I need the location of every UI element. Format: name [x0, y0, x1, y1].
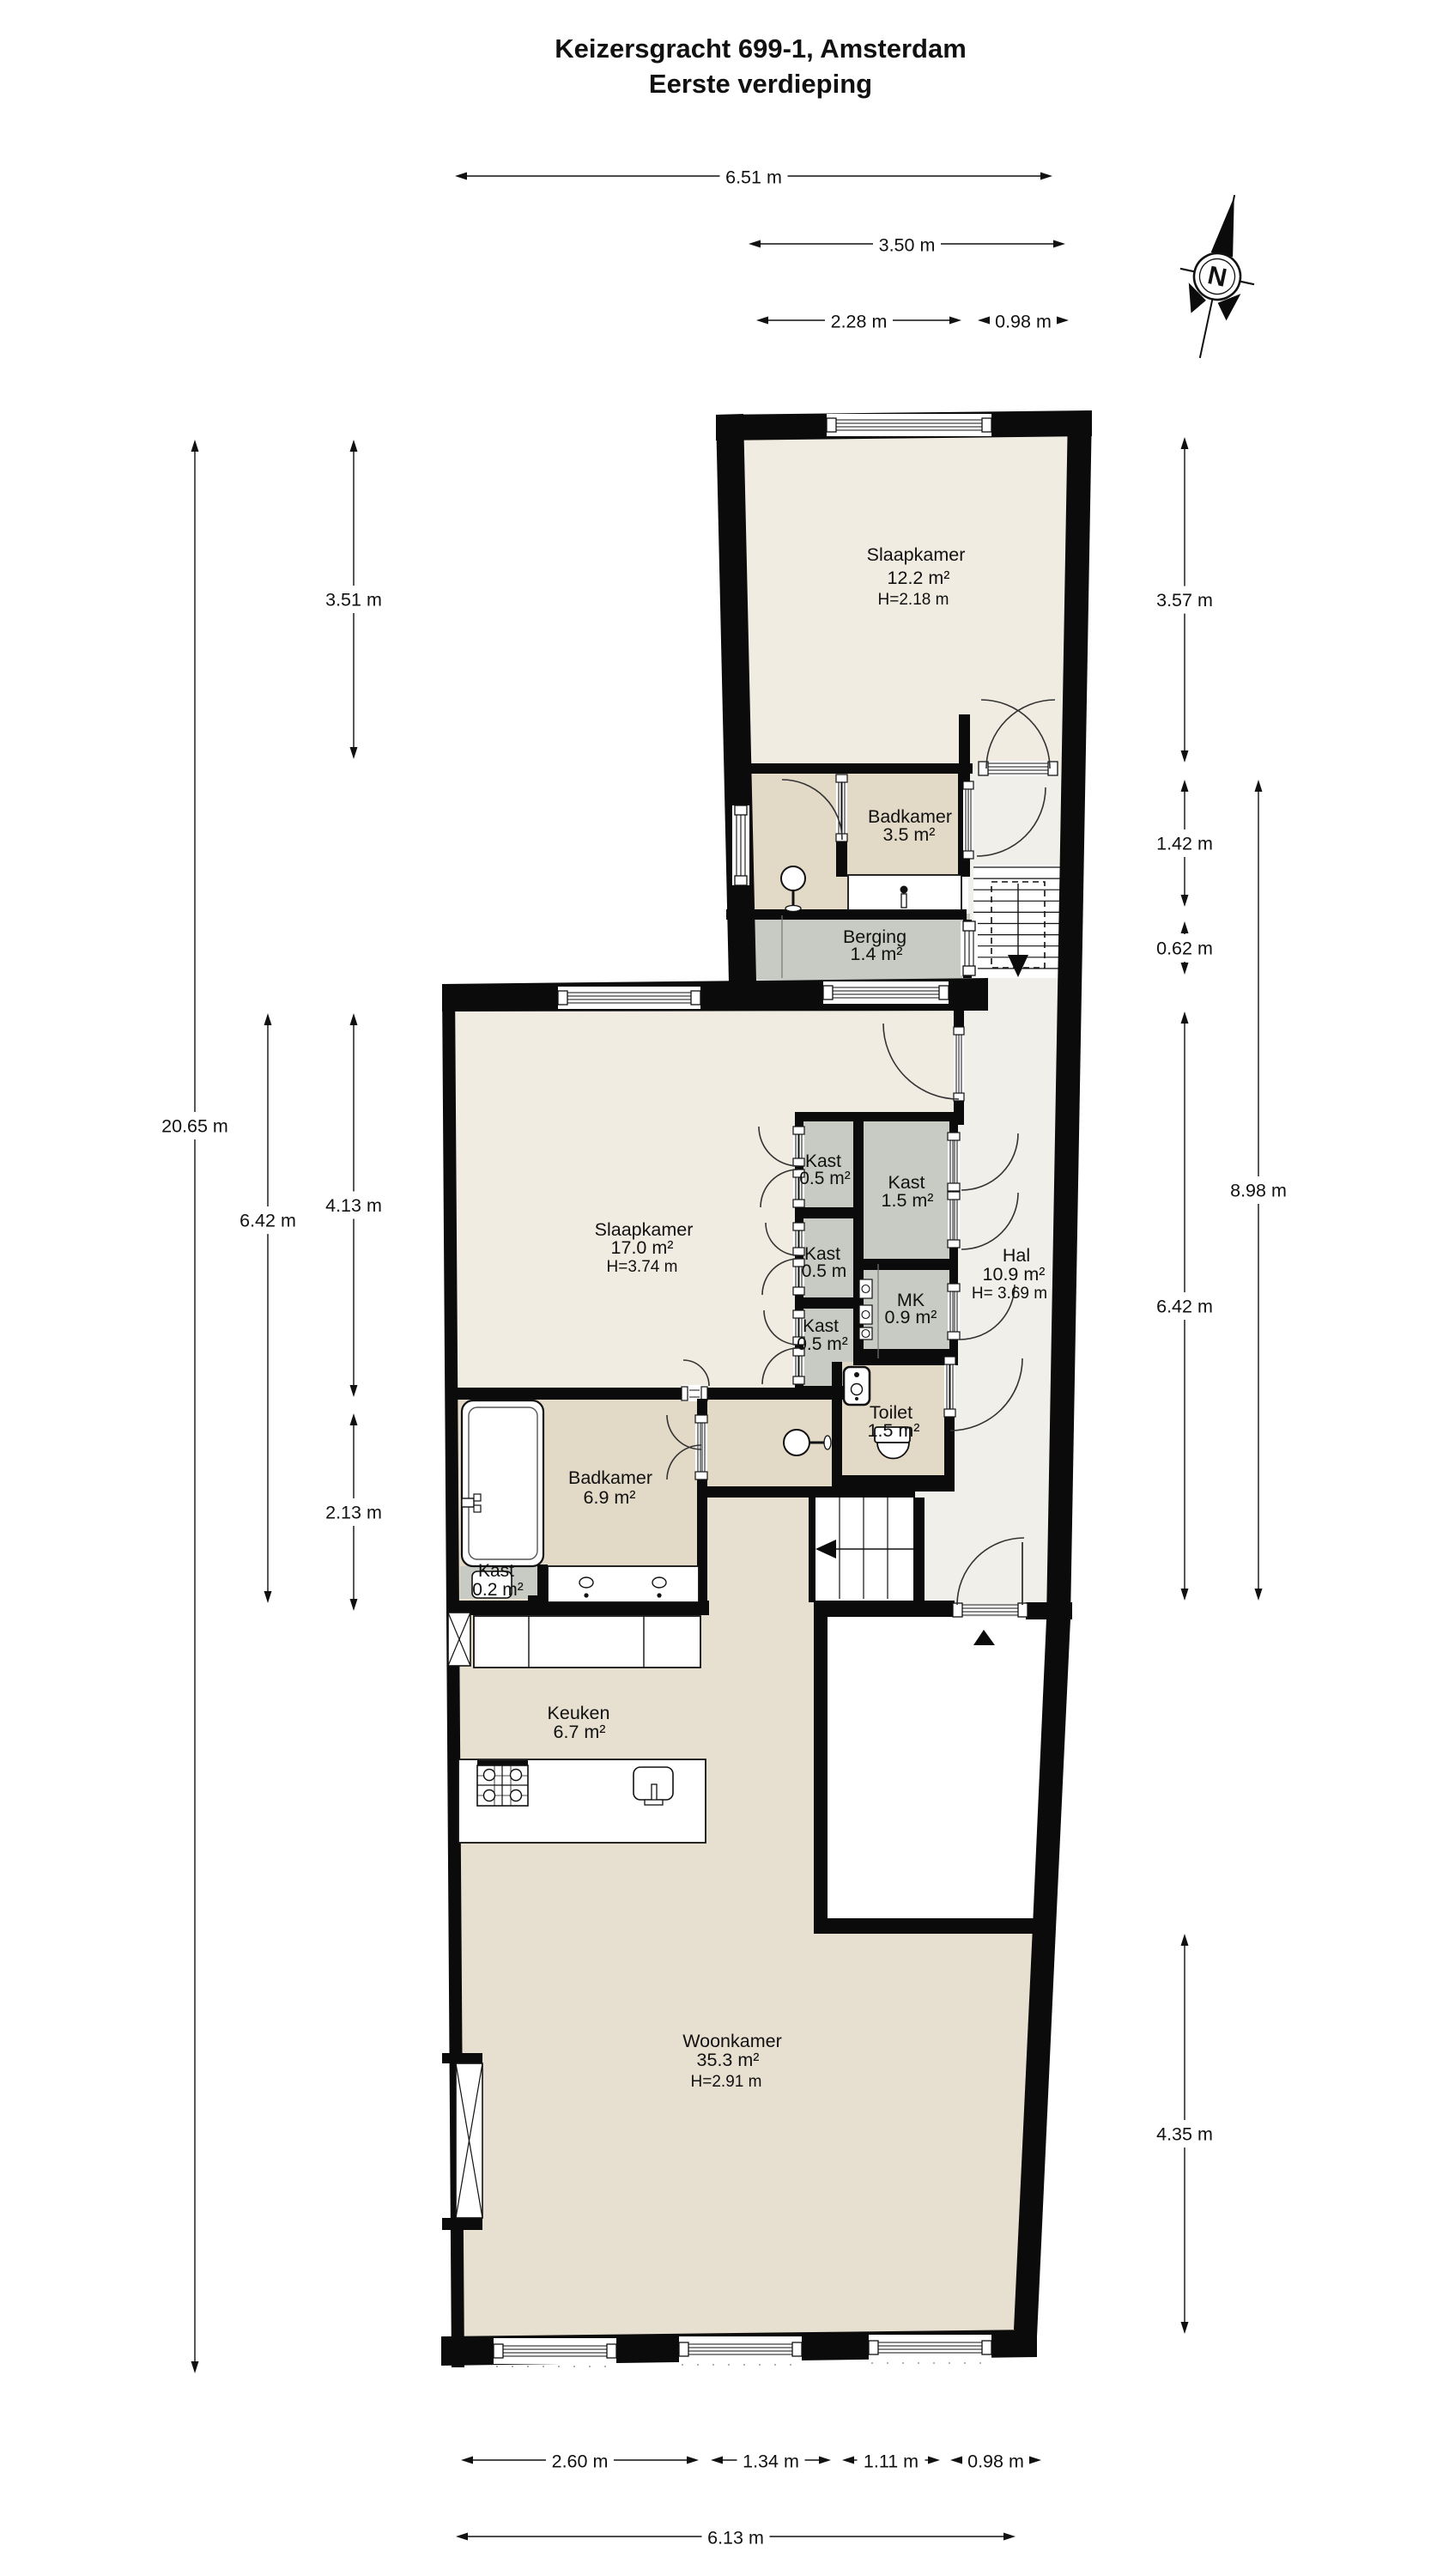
svg-text:Kast: Kast	[803, 1316, 839, 1336]
svg-text:1.5 m²: 1.5 m²	[868, 1420, 920, 1441]
svg-text:12.2 m²: 12.2 m²	[888, 568, 950, 588]
svg-text:Badkamer: Badkamer	[568, 1467, 652, 1488]
svg-text:Slaapkamer: Slaapkamer	[867, 544, 966, 565]
svg-text:6.9 m²: 6.9 m²	[584, 1487, 636, 1508]
svg-text:0.9 m²: 0.9 m²	[885, 1307, 937, 1327]
svg-text:Keizersgracht 699-1, Amsterdam: Keizersgracht 699-1, Amsterdam	[555, 33, 967, 64]
svg-text:6.51 m: 6.51 m	[725, 167, 782, 188]
svg-text:20.65 m: 20.65 m	[161, 1116, 228, 1137]
svg-text:2.60 m: 2.60 m	[552, 2451, 609, 2472]
svg-text:2.28 m: 2.28 m	[831, 312, 888, 332]
svg-text:Eerste verdieping: Eerste verdieping	[649, 69, 872, 99]
svg-text:0.5 m²: 0.5 m²	[797, 1334, 848, 1354]
svg-text:1.4 m²: 1.4 m²	[851, 944, 903, 964]
svg-text:10.9 m²: 10.9 m²	[983, 1264, 1046, 1285]
svg-text:4.35 m: 4.35 m	[1156, 2124, 1213, 2145]
svg-text:Hal: Hal	[1003, 1245, 1030, 1266]
svg-text:H=2.91 m: H=2.91 m	[691, 2073, 762, 2091]
svg-text:Kast: Kast	[478, 1561, 514, 1581]
svg-text:1.42 m: 1.42 m	[1156, 834, 1213, 854]
svg-text:6.7 m²: 6.7 m²	[554, 1722, 606, 1742]
svg-text:H= 3.69 m: H= 3.69 m	[972, 1285, 1047, 1303]
svg-text:0.98 m: 0.98 m	[995, 312, 1052, 332]
svg-text:H=2.18 m: H=2.18 m	[878, 591, 949, 609]
svg-text:Woonkamer: Woonkamer	[682, 2031, 782, 2051]
svg-text:0.98 m: 0.98 m	[967, 2451, 1024, 2472]
svg-text:0.2 m²: 0.2 m²	[472, 1580, 524, 1600]
svg-text:1.5 m²: 1.5 m²	[882, 1190, 934, 1211]
svg-text:6.42 m: 6.42 m	[239, 1211, 296, 1231]
svg-text:3.51 m: 3.51 m	[325, 590, 382, 611]
svg-text:2.13 m: 2.13 m	[325, 1503, 382, 1523]
svg-text:Keuken: Keuken	[548, 1703, 610, 1723]
svg-text:3.5 m²: 3.5 m²	[883, 824, 936, 845]
svg-text:0.5 m: 0.5 m	[802, 1261, 847, 1281]
svg-text:3.50 m: 3.50 m	[879, 235, 936, 256]
svg-text:0.62 m: 0.62 m	[1156, 939, 1213, 959]
svg-text:17.0 m²: 17.0 m²	[611, 1237, 674, 1258]
svg-text:3.57 m: 3.57 m	[1156, 590, 1213, 611]
svg-text:1.34 m: 1.34 m	[743, 2451, 799, 2472]
svg-text:6.13 m: 6.13 m	[707, 2528, 764, 2549]
svg-text:0.5 m²: 0.5 m²	[799, 1169, 851, 1188]
svg-text:35.3 m²: 35.3 m²	[697, 2050, 760, 2070]
svg-text:1.11 m: 1.11 m	[864, 2451, 919, 2472]
svg-text:H=3.74 m: H=3.74 m	[607, 1258, 678, 1276]
svg-text:8.98 m: 8.98 m	[1230, 1181, 1287, 1201]
svg-text:4.13 m: 4.13 m	[325, 1195, 382, 1216]
svg-text:6.42 m: 6.42 m	[1156, 1297, 1213, 1317]
